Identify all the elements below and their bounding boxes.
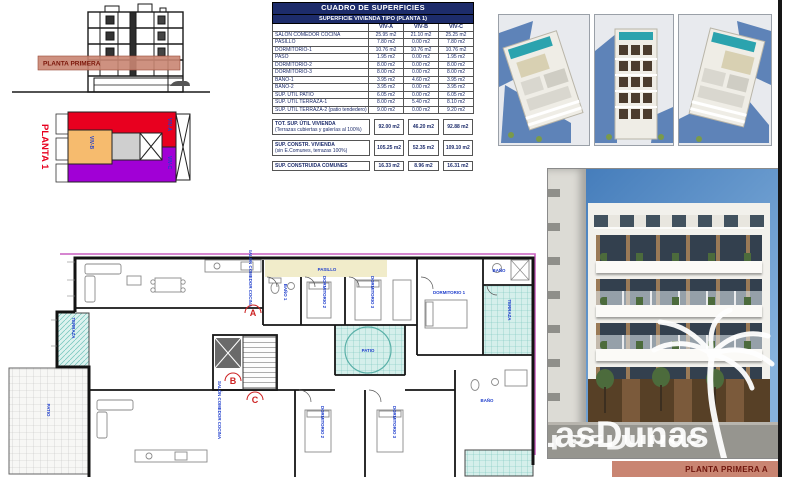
unit-marker-c: C (252, 395, 259, 405)
room-label-salon-a: SALÓN COMEDOR COCINA (248, 250, 253, 308)
area-viv-c: 7.80 m2 (439, 39, 474, 47)
table-subtitle: SUPERFICIE VIVIENDA TIPO (PLANTA 1) (273, 14, 474, 24)
room-label-salon-c: SALÓN COMEDOR COCINA (217, 381, 222, 440)
area-viv-a: 6.05 m2 (369, 91, 404, 99)
area-viv-b: 4.60 m2 (404, 76, 439, 84)
planta-primera-band-label: PLANTA PRIMERA (43, 61, 101, 68)
key-plan-viv-b-label: VIV-B (88, 136, 94, 149)
surface-table-row: SALÓN COMEDOR COCINA25.95 m221.10 m225.2… (273, 31, 474, 39)
room-name: DORMITORIO-1 (273, 46, 369, 54)
total-row-comunes: SUP. CONSTRUIDA COMUNES 16.33 m2 8.96 m2… (272, 161, 473, 171)
footer-label: PLANTA PRIMERA A (685, 465, 768, 474)
surface-table-row: BAÑO-23.95 m20.00 m23.95 m2 (273, 84, 474, 92)
area-viv-c: 6.05 m2 (439, 91, 474, 99)
street-tree (596, 369, 614, 389)
table-totals: TOT. SUP. ÚTIL VIVIENDA (Terrazas cubier… (272, 119, 473, 171)
room-name: DORMITORIO-2 (273, 61, 369, 69)
area-viv-b: 0.00 m2 (404, 91, 439, 99)
neighbor-windows (548, 189, 560, 429)
room-name: DORMITORIO-3 (273, 69, 369, 77)
total-value-b: 8.96 m2 (408, 161, 438, 171)
key-plan-svg: PLANTA 1 VIV-A VIV-B VIV (28, 106, 196, 224)
area-viv-c: 25.25 m2 (439, 31, 474, 39)
terrace-bottom-area (465, 450, 533, 476)
total-row-util: TOT. SUP. ÚTIL VIVIENDA (Terrazas cubier… (272, 119, 473, 135)
area-viv-b: 0.00 m2 (404, 69, 439, 77)
room-label-dormitorio-2: DORMITORIO 2 (322, 276, 327, 309)
room-label-terraza-right: TERRAZA (507, 300, 512, 322)
area-viv-b: 10.76 m2 (404, 46, 439, 54)
section-building (12, 4, 210, 92)
total-value-b: 46.20 m2 (408, 119, 438, 135)
sheet-frame-right (778, 0, 782, 477)
key-plan-viv-a-label: VIV-A (166, 118, 172, 131)
total-value-a: 16.33 m2 (374, 161, 404, 171)
area-viv-b: 5.40 m2 (404, 99, 439, 107)
roof-terrace (594, 215, 764, 229)
aerial-render-3 (678, 14, 772, 146)
room-label-patio-left: PATIO (46, 404, 51, 417)
area-viv-a: 8.00 m2 (369, 61, 404, 69)
car-icon (170, 81, 190, 86)
total-value-b: 52.35 m2 (408, 140, 438, 156)
room-label-dormitorio-c1: DORMITORIO 2 (320, 406, 325, 439)
room-label-dormitorio-c2: DORMITORIO 3 (392, 406, 397, 439)
surface-table-row: SUP. ÚTIL TERRAZA-18.00 m25.40 m28.10 m2 (273, 99, 474, 107)
area-viv-a: 10.76 m2 (369, 46, 404, 54)
area-viv-a: 8.00 m2 (369, 99, 404, 107)
area-viv-c: 9.20 m2 (439, 106, 474, 114)
table-body: SALÓN COMEDOR COCINA25.95 m221.10 m225.2… (273, 31, 474, 114)
key-plan-title: PLANTA 1 (39, 124, 50, 170)
area-viv-a: 7.80 m2 (369, 39, 404, 47)
plan-sheet: PLANTA PRIMERA PLANTA 1 (0, 0, 788, 477)
area-viv-b: 0.00 m2 (404, 39, 439, 47)
table-column-headers: VIV-A VIV-B VIV-C (273, 24, 474, 32)
floor-plan-svg: TERRAZA PATIO SALÓN COMEDOR COCINA PASIL… (5, 250, 540, 477)
room-name: PASO (273, 54, 369, 62)
facade-render: LasDunas (547, 168, 779, 459)
area-viv-b: 0.00 m2 (404, 54, 439, 62)
surface-table-row: SUP. ÚTIL TERRAZA-2 (patio tendedero)9.0… (273, 106, 474, 114)
surface-table-row: DORMITORIO-28.00 m20.00 m28.00 m2 (273, 61, 474, 69)
surface-table-row: PASO1.95 m20.00 m21.95 m2 (273, 54, 474, 62)
aerial-renders (498, 14, 778, 146)
surface-table-row: BAÑO-13.95 m24.60 m23.95 m2 (273, 76, 474, 84)
footer-band: PLANTA PRIMERA A (612, 461, 778, 477)
table-title: CUADRO DE SUPERFICIES (273, 3, 474, 15)
room-label-patio: PATIO (362, 348, 375, 353)
area-viv-b: 21.10 m2 (404, 31, 439, 39)
room-name: SUP. ÚTIL TERRAZA-1 (273, 99, 369, 107)
total-label-title: SUP. CONSTRUIDA COMUNES (275, 163, 367, 169)
balcony-floor-4 (596, 235, 762, 273)
room-label-pasillo: PASILLO (318, 267, 337, 272)
room-label-bano-b: BAÑO (493, 268, 507, 273)
area-viv-a: 8.00 m2 (369, 69, 404, 77)
total-value-a: 92.00 m2 (374, 119, 404, 135)
section-drawing-svg: PLANTA PRIMERA (10, 2, 225, 102)
area-viv-c: 10.76 m2 (439, 46, 474, 54)
key-plan: PLANTA 1 VIV-A VIV-B VIV (28, 106, 196, 224)
area-viv-c: 3.95 m2 (439, 76, 474, 84)
surface-table-row: SUP. ÚTIL PATIO6.05 m20.00 m26.05 m2 (273, 91, 474, 99)
room-name: BAÑO-2 (273, 84, 369, 92)
total-value-c: 16.31 m2 (443, 161, 473, 171)
total-row-constr: SUP. CONSTR. VIVIENDA (sin E.Comunes, te… (272, 140, 473, 156)
room-label-dormitorio-3: DORMITORIO 3 (370, 276, 375, 309)
surface-table-row: DORMITORIO-38.00 m20.00 m28.00 m2 (273, 69, 474, 77)
aerial-render-2 (594, 14, 674, 146)
room-label-terraza-left: TERRAZA (71, 318, 76, 340)
total-value-c: 92.88 m2 (443, 119, 473, 135)
area-viv-a: 3.95 m2 (369, 76, 404, 84)
room-name: SUP. ÚTIL PATIO (273, 91, 369, 99)
total-label-note: (Terrazas cubiertas y galerías al 100%) (275, 127, 362, 133)
area-viv-b: 0.00 m2 (404, 106, 439, 114)
room-name: SUP. ÚTIL TERRAZA-2 (patio tendedero) (273, 106, 369, 114)
total-value-c: 109.10 m2 (443, 140, 473, 156)
room-label-bano-c: BAÑO (481, 398, 495, 403)
surface-table-row: PASILLO7.80 m20.00 m27.80 m2 (273, 39, 474, 47)
area-viv-c: 8.00 m2 (439, 69, 474, 77)
total-value-a: 105.25 m2 (374, 140, 404, 156)
area-viv-b: 0.00 m2 (404, 84, 439, 92)
key-plan-viv-c-label: VIV-C (166, 156, 172, 169)
column-header-viv-c: VIV-C (439, 24, 474, 32)
area-viv-b: 0.00 m2 (404, 61, 439, 69)
patio-grid-area (9, 368, 89, 474)
area-viv-c: 8.10 m2 (439, 99, 474, 107)
area-viv-a: 9.00 m2 (369, 106, 404, 114)
surface-table-row: DORMITORIO-110.76 m210.76 m210.76 m2 (273, 46, 474, 54)
total-label: SUP. CONSTR. VIVIENDA (sin E.Comunes, te… (272, 140, 370, 156)
area-viv-c: 1.95 m2 (439, 54, 474, 62)
key-plan-balconies (56, 114, 68, 182)
column-header-empty (273, 24, 369, 32)
total-label: SUP. CONSTRUIDA COMUNES (272, 161, 370, 171)
area-viv-c: 8.00 m2 (439, 61, 474, 69)
area-viv-a: 3.95 m2 (369, 84, 404, 92)
area-viv-a: 25.95 m2 (369, 31, 404, 39)
stairs (243, 336, 276, 389)
room-name: PASILLO (273, 39, 369, 47)
unit-marker-a: A (250, 308, 257, 318)
watermark-brand: LasDunas (547, 414, 709, 456)
unit-marker-b: B (230, 376, 237, 386)
aerial-render-1 (498, 14, 590, 146)
column-header-viv-b: VIV-B (404, 24, 439, 32)
column-header-viv-a: VIV-A (369, 24, 404, 32)
total-label-note: (sin E.Comunes, terrazas 100%) (275, 148, 347, 154)
planta-primera-band: PLANTA PRIMERA (38, 56, 180, 70)
room-name: BAÑO-1 (273, 76, 369, 84)
floor-plan: TERRAZA PATIO SALÓN COMEDOR COCINA PASIL… (5, 250, 540, 477)
total-label: TOT. SUP. ÚTIL VIVIENDA (Terrazas cubier… (272, 119, 370, 135)
surface-table: CUADRO DE SUPERFICIES SUPERFICIE VIVIEND… (272, 2, 473, 171)
area-viv-a: 1.95 m2 (369, 54, 404, 62)
section-drawing: PLANTA PRIMERA (10, 2, 225, 102)
room-label-bano-1: BAÑO 1 (283, 284, 288, 301)
room-name: SALÓN COMEDOR COCINA (273, 31, 369, 39)
room-label-dormitorio-1: DORMITORIO 1 (433, 290, 466, 295)
area-viv-c: 3.95 m2 (439, 84, 474, 92)
